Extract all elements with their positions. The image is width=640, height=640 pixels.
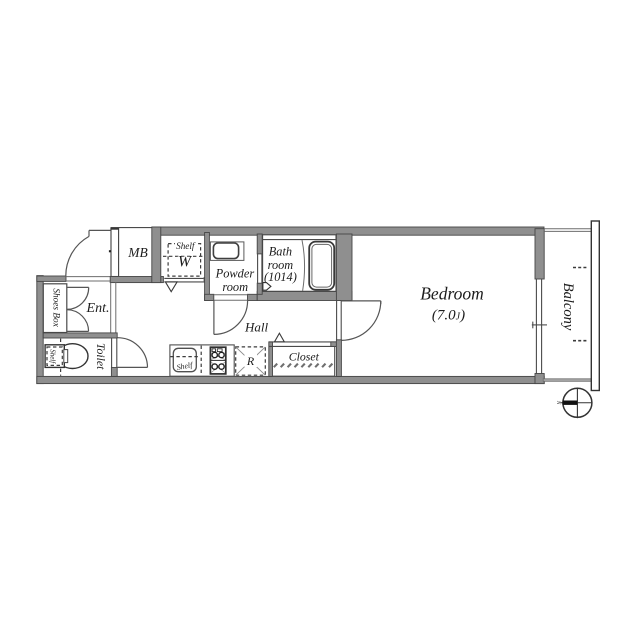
svg-text:Ent.: Ent. <box>86 301 110 316</box>
svg-text:Shelf: Shelf <box>48 349 56 364</box>
svg-text:room: room <box>222 280 248 294</box>
svg-text:(1014): (1014) <box>264 270 297 284</box>
svg-text:Hall: Hall <box>244 319 269 334</box>
svg-text:Bedroom: Bedroom <box>420 283 484 303</box>
svg-text:Shoes Box: Shoes Box <box>51 288 61 327</box>
svg-text:N: N <box>555 400 561 405</box>
svg-text:Closet: Closet <box>289 349 320 363</box>
svg-text:R: R <box>246 354 255 368</box>
svg-text:MB: MB <box>127 245 148 260</box>
svg-text:Shelf: Shelf <box>176 241 196 251</box>
svg-text:Bath: Bath <box>269 245 292 259</box>
svg-text:Powder: Powder <box>215 266 255 280</box>
svg-text:(7.0J): (7.0J) <box>432 308 465 324</box>
svg-text:Balcony: Balcony <box>560 283 576 331</box>
svg-text:W: W <box>178 254 193 271</box>
svg-text:Toilet: Toilet <box>94 343 108 370</box>
